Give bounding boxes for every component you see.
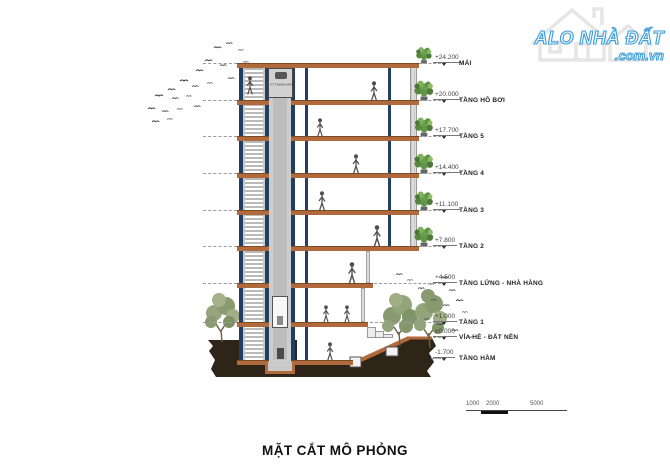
leader-dash: [203, 136, 237, 137]
bird-icon: [418, 288, 424, 289]
bird-icon: [205, 60, 212, 61]
bird-icon: [196, 70, 203, 71]
plant-icon: [415, 118, 433, 137]
leader-dash: [203, 283, 237, 284]
person-icon: [327, 342, 332, 360]
plant-icon: [416, 47, 431, 63]
person-icon: [349, 262, 355, 283]
scale-label: 2000: [486, 401, 499, 407]
elevation-value: ±0.000: [433, 328, 457, 337]
bird-icon: [220, 65, 226, 66]
level-label: MÁI: [459, 60, 472, 67]
leader-dash: [203, 246, 237, 247]
leader-dash: [203, 100, 237, 101]
elevation-value: +7.800: [433, 237, 457, 246]
scale-label: 5000: [530, 401, 543, 407]
elevation-value: +17.700: [433, 127, 461, 136]
bird-icon: [407, 280, 413, 281]
balcony-plants: [415, 47, 434, 247]
bird-icon: [148, 108, 155, 109]
plant-icon: [415, 81, 434, 101]
leader-dash: [203, 173, 237, 174]
bird-icon: [152, 121, 159, 122]
drawing-title: MẶT CẮT MÔ PHỎNG: [0, 443, 670, 458]
bird-icon: [168, 89, 175, 90]
level-label: TẦNG LỬNG - NHÀ HÀNG: [459, 280, 543, 287]
leader-dash: [419, 246, 441, 247]
plant-icon: [415, 227, 434, 247]
scale-label: 1000: [466, 401, 479, 407]
person-icon: [371, 81, 376, 100]
bird-icon: [243, 62, 249, 63]
elevation-value: +20.000: [433, 91, 461, 100]
elevation-value: +11.100: [433, 201, 460, 210]
leader-dash: [431, 358, 441, 359]
leader-dash: [203, 210, 237, 211]
leader-dash: [419, 173, 441, 174]
person-icon: [319, 191, 324, 210]
bird-icon: [167, 119, 173, 120]
bird-icon: [177, 109, 183, 110]
bird-icon: [180, 80, 188, 81]
scale-bar: 1000 2000 5000: [466, 401, 576, 417]
level-label: TẦNG 5: [459, 133, 484, 140]
bird-icon: [172, 98, 178, 99]
elevation-value: +24.200: [433, 54, 461, 63]
leader-dash: [374, 283, 441, 284]
cross-section-canvas: KT THANG MÁY: [0, 0, 670, 473]
level-label: TẦNG 2: [459, 243, 484, 250]
scale-bar-segment: [481, 411, 508, 414]
bird-icon: [456, 300, 463, 301]
leader-dash: [419, 100, 441, 101]
level-label: TẦNG 4: [459, 170, 484, 177]
bird-icon: [162, 111, 168, 112]
level-label: TẦNG HẦM: [459, 355, 496, 362]
leader-dash: [203, 322, 237, 323]
elevation-value: -1.700: [433, 349, 455, 358]
leader-dash: [419, 63, 441, 64]
bird-icon: [462, 312, 468, 313]
level-label: VỈA HÈ - ĐẤT NỀN: [459, 334, 518, 341]
leader-dash: [203, 63, 237, 64]
bird-icon: [431, 300, 437, 301]
bird-icon: [396, 274, 402, 275]
leader-dash: [419, 210, 441, 211]
bird-icon: [186, 96, 192, 97]
level-label: TẦNG 3: [459, 207, 484, 214]
plant-icon: [415, 154, 434, 174]
leader-dash: [433, 337, 441, 338]
person-icon: [345, 305, 350, 322]
bird-icon: [194, 106, 200, 107]
watermark: ALO NHÀ ĐẤT .com.vn: [520, 0, 670, 70]
elevation-value: +1.000: [433, 313, 457, 322]
watermark-domain: .com.vn: [615, 48, 664, 63]
elevation-value: +4.500: [433, 274, 457, 283]
bird-icon: [207, 83, 213, 84]
bird-icon: [192, 86, 198, 87]
elevation-value: +14.400: [433, 164, 461, 173]
person-icon: [353, 154, 358, 173]
bird-icon: [226, 43, 232, 44]
bird-flock-left: [148, 43, 249, 122]
bird-icon: [155, 95, 163, 96]
leader-dash: [370, 322, 441, 323]
bird-icon: [238, 50, 244, 51]
leader-dash: [419, 136, 441, 137]
person-icon: [324, 305, 329, 322]
person-icon: [374, 225, 380, 246]
level-label: TẦNG 1: [459, 319, 484, 326]
watermark-brand: ALO NHÀ ĐẤT: [535, 28, 665, 49]
bird-icon: [424, 319, 430, 320]
person-icon: [317, 118, 322, 136]
bird-icon: [449, 290, 455, 291]
plant-icon: [415, 192, 433, 211]
person-icon: [247, 76, 252, 94]
bird-icon: [443, 305, 449, 306]
figures: [247, 76, 380, 360]
level-label: TẦNG HỒ BƠI: [459, 97, 505, 104]
bird-icon: [214, 47, 221, 48]
bird-icon: [228, 78, 234, 79]
